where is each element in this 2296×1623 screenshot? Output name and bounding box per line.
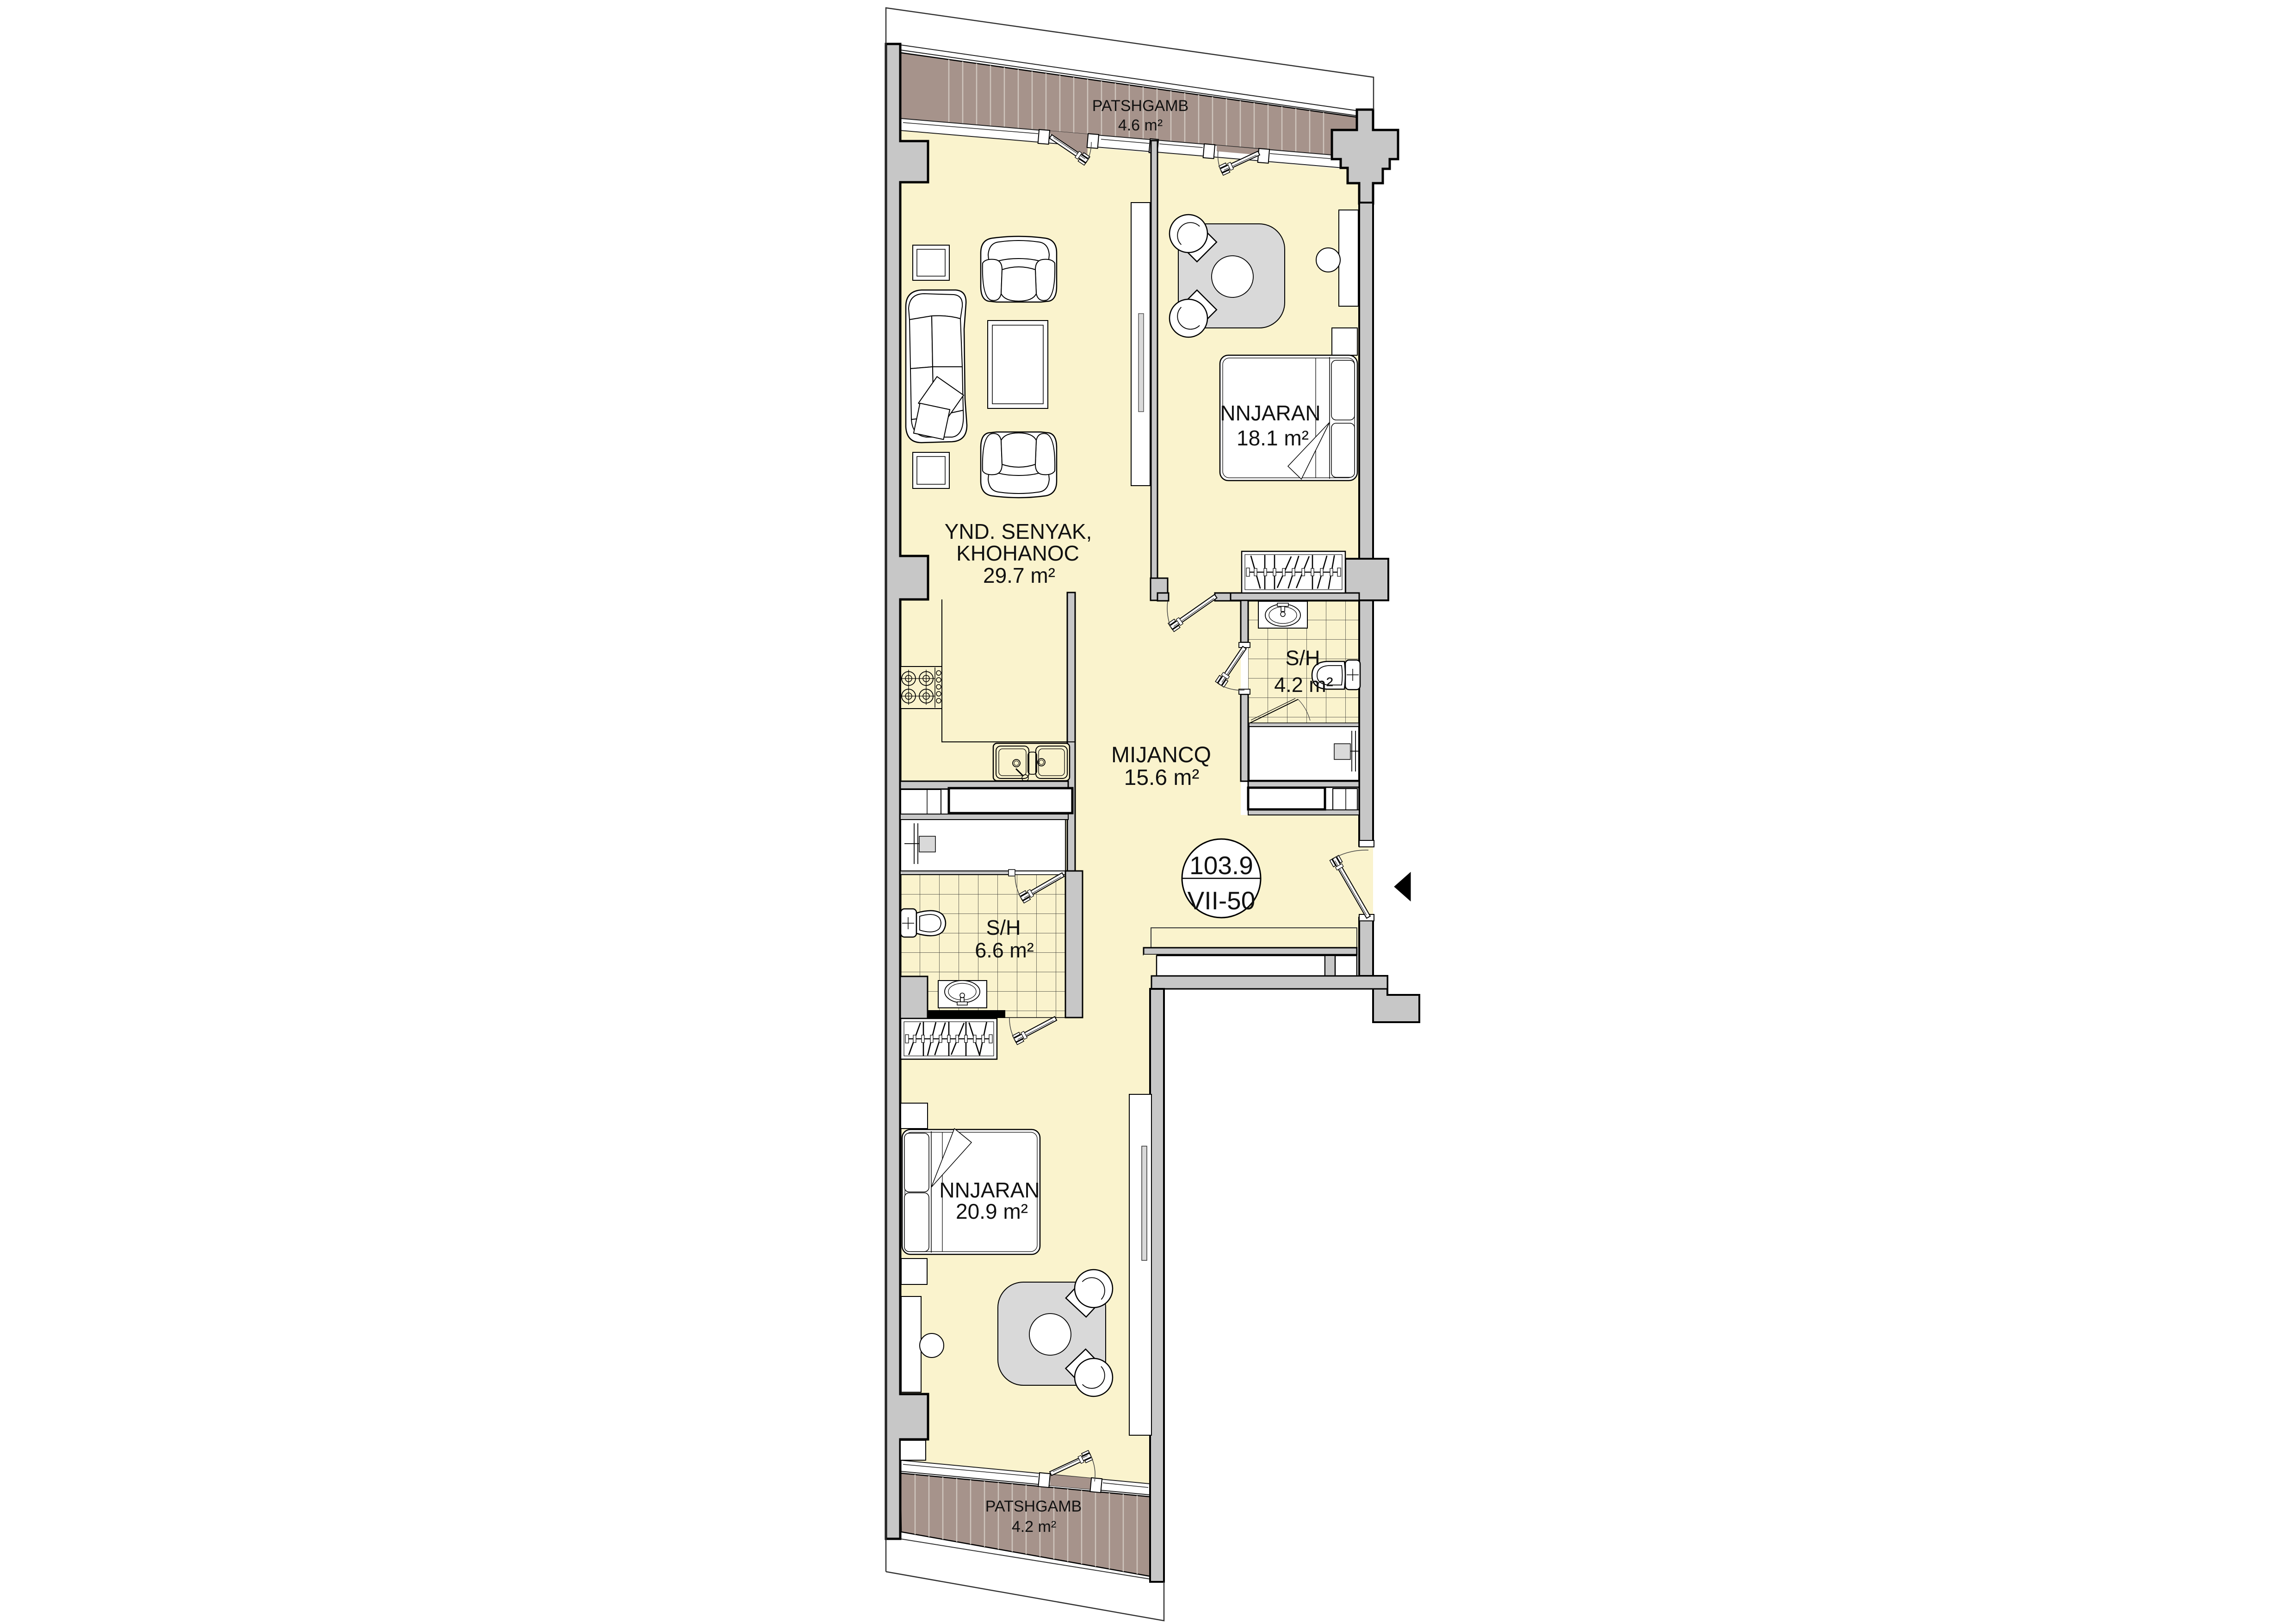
svg-text:KHOHANOC: KHOHANOC bbox=[956, 541, 1079, 565]
svg-text:S/H: S/H bbox=[986, 916, 1021, 939]
svg-text:VII-50: VII-50 bbox=[1188, 886, 1256, 915]
svg-text:PATSHGAMB: PATSHGAMB bbox=[985, 1498, 1082, 1515]
svg-text:NNJARAN: NNJARAN bbox=[1220, 401, 1320, 425]
svg-text:4.2 m²: 4.2 m² bbox=[1274, 673, 1333, 697]
svg-text:20.9 m²: 20.9 m² bbox=[956, 1199, 1028, 1223]
svg-text:29.7 m²: 29.7 m² bbox=[983, 563, 1055, 587]
svg-text:PATSHGAMB: PATSHGAMB bbox=[1092, 97, 1188, 115]
svg-text:S/H: S/H bbox=[1285, 646, 1320, 670]
svg-text:4.2 m²: 4.2 m² bbox=[1012, 1518, 1056, 1536]
svg-text:NNJARAN: NNJARAN bbox=[939, 1178, 1040, 1202]
svg-text:103.9: 103.9 bbox=[1189, 851, 1253, 880]
svg-text:4.6 m²: 4.6 m² bbox=[1118, 117, 1163, 134]
svg-text:MIJANCQ: MIJANCQ bbox=[1111, 743, 1211, 767]
svg-text:15.6 m²: 15.6 m² bbox=[1124, 765, 1200, 790]
svg-text:YND. SENYAK,: YND. SENYAK, bbox=[945, 519, 1092, 543]
svg-text:18.1 m²: 18.1 m² bbox=[1237, 426, 1309, 450]
svg-text:6.6 m²: 6.6 m² bbox=[975, 938, 1034, 962]
